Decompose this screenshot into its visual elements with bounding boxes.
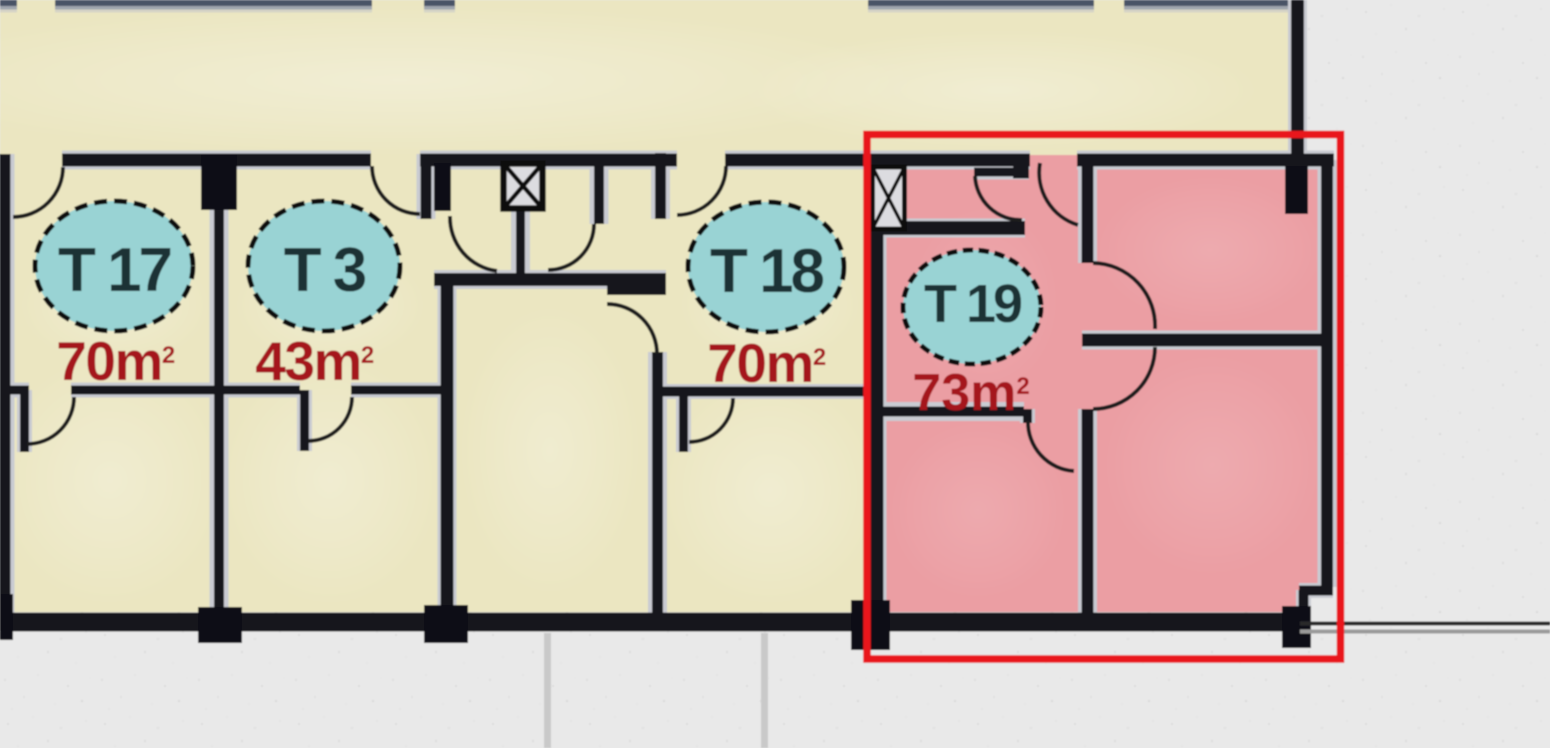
svg-text:73m2: 73m2 bbox=[912, 364, 1029, 422]
svg-text:T 19: T 19 bbox=[924, 274, 1022, 334]
svg-text:43m2: 43m2 bbox=[255, 330, 374, 392]
svg-text:T 17: T 17 bbox=[58, 236, 171, 305]
svg-text:70m2: 70m2 bbox=[707, 332, 826, 394]
svg-text:70m2: 70m2 bbox=[56, 330, 175, 392]
svg-text:T 3: T 3 bbox=[284, 236, 366, 305]
svg-text:T 18: T 18 bbox=[710, 237, 824, 306]
